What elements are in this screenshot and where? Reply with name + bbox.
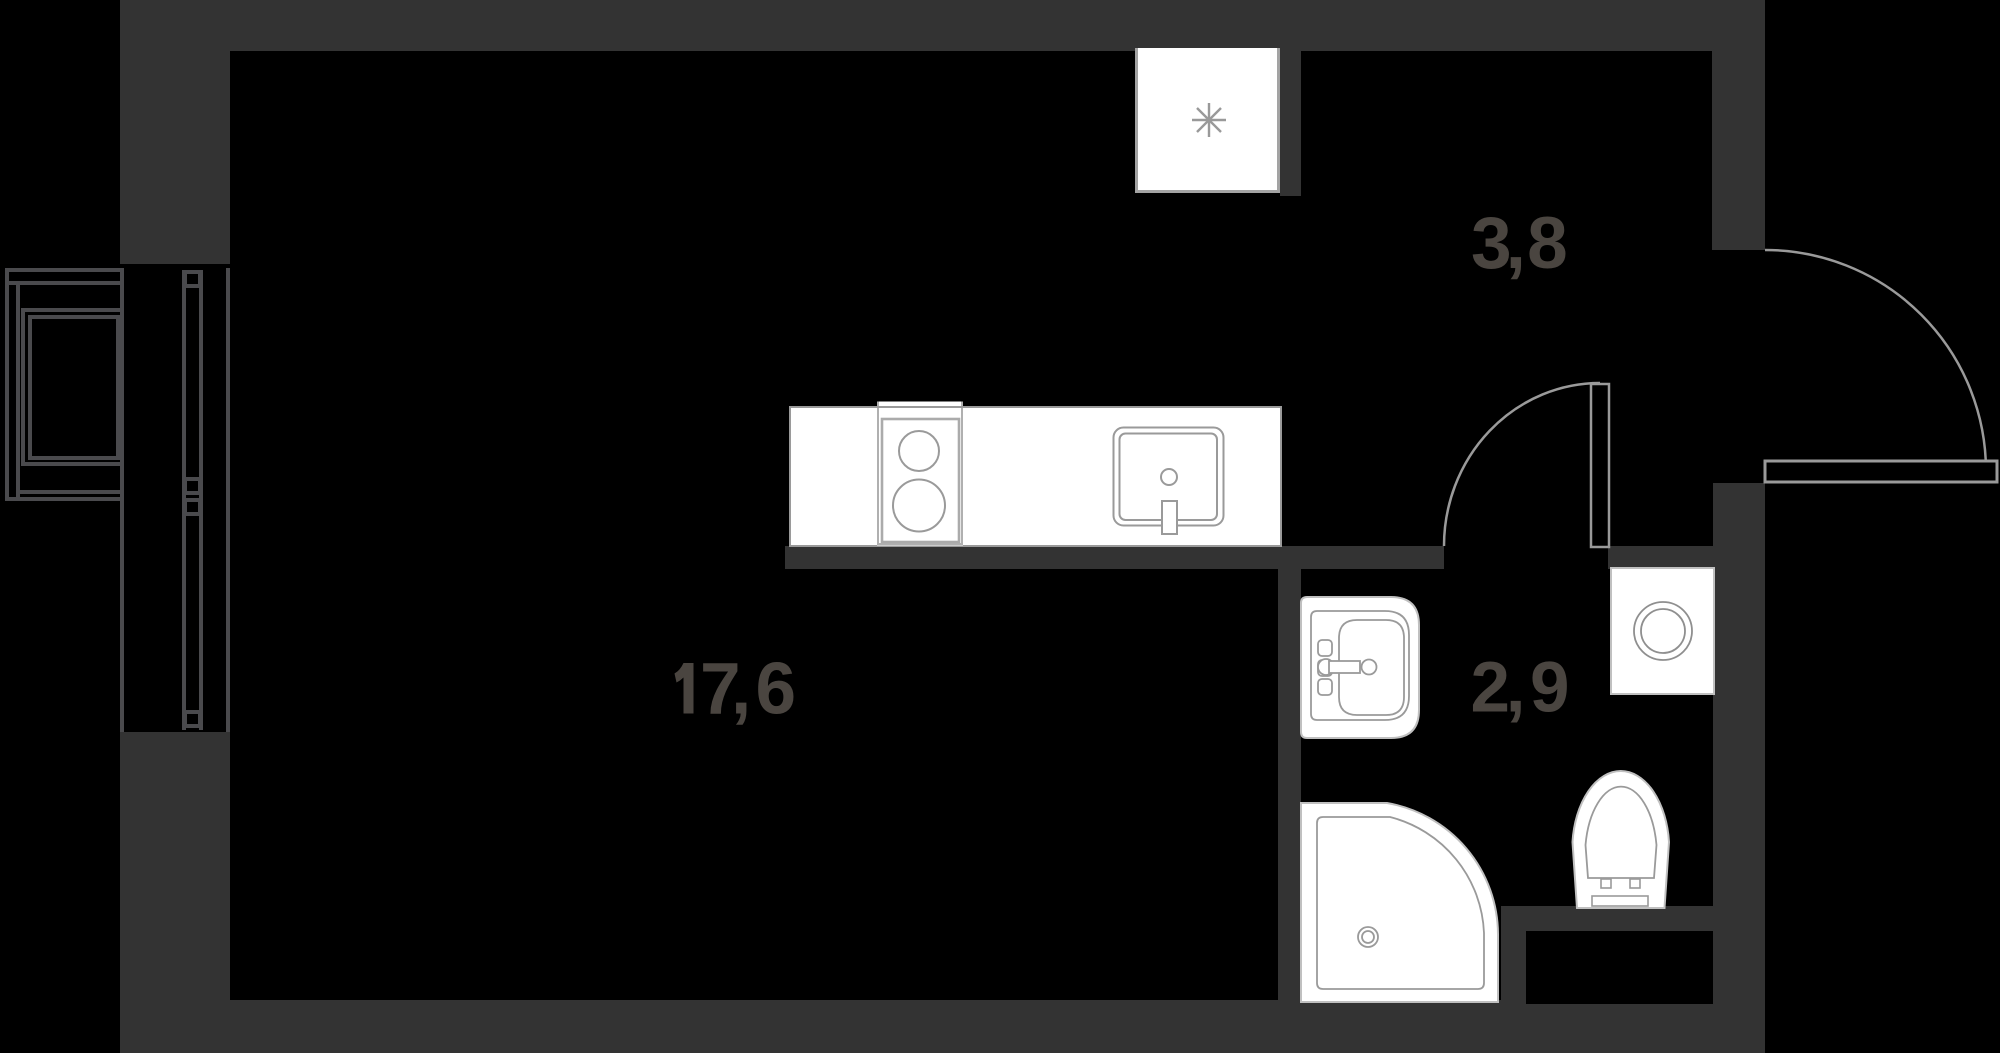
svg-text:3,8: 3,8: [1471, 203, 1568, 284]
svg-text:7,6: 7,6: [700, 649, 796, 730]
svg-text:2,9: 2,9: [1471, 649, 1570, 728]
